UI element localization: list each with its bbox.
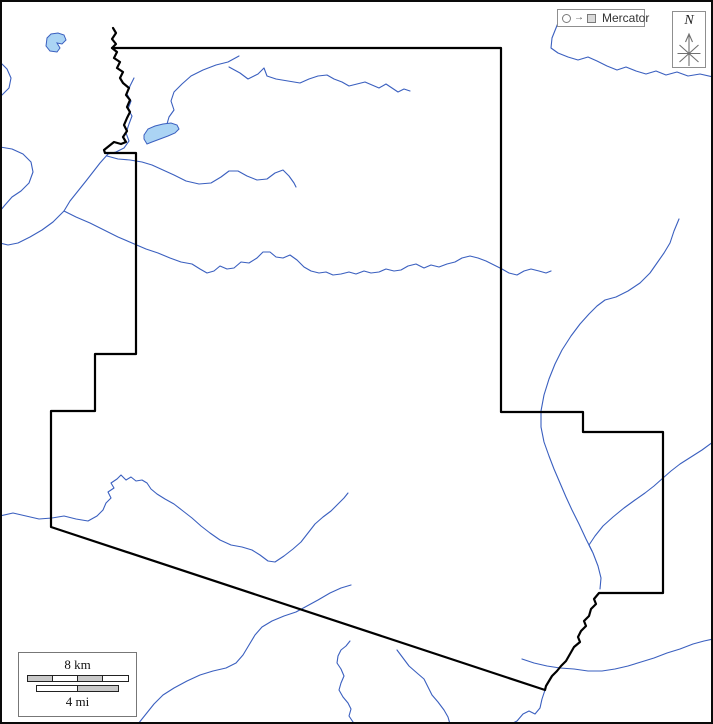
river: [138, 585, 351, 724]
river: [167, 56, 239, 124]
boundary-layer: [51, 28, 663, 690]
projection-square-icon: [587, 14, 596, 23]
scale-bar: 8 km 4 mi: [18, 652, 137, 717]
compass-box: N: [672, 11, 706, 68]
river: [511, 690, 545, 724]
county-boundary: [51, 48, 663, 690]
compass-north-label: N: [684, 14, 693, 28]
scale-km-label: 8 km: [64, 658, 90, 671]
river: [0, 62, 11, 97]
river: [541, 219, 679, 589]
scale-segment: [37, 686, 77, 691]
river: [0, 147, 33, 211]
compass-star-icon: [676, 28, 702, 66]
scale-segment: [77, 686, 118, 691]
river: [0, 475, 348, 562]
rivers-layer: [0, 18, 713, 724]
lake: [144, 123, 179, 144]
scale-segment: [102, 676, 127, 681]
river: [589, 442, 713, 551]
projection-label: Mercator: [602, 11, 649, 25]
boundary-stub: [112, 28, 116, 48]
river: [397, 650, 450, 724]
projection-arrow-icon: →: [574, 13, 584, 23]
map-canvas: [0, 0, 713, 724]
credit-text: © d-maps.com: [0, 655, 3, 719]
scale-bar-mi: [36, 685, 119, 692]
projection-circle-icon: [562, 14, 571, 23]
river: [337, 641, 355, 724]
river: [229, 67, 410, 92]
scale-segment: [52, 676, 77, 681]
scale-segment: [77, 676, 102, 681]
projection-badge: → Mercator: [557, 9, 645, 27]
river: [522, 639, 713, 671]
river: [0, 211, 64, 245]
lake: [46, 33, 66, 52]
scale-bar-km: [27, 675, 129, 682]
scale-segment: [28, 676, 52, 681]
river: [64, 154, 108, 211]
scale-mi-label: 4 mi: [66, 695, 89, 708]
